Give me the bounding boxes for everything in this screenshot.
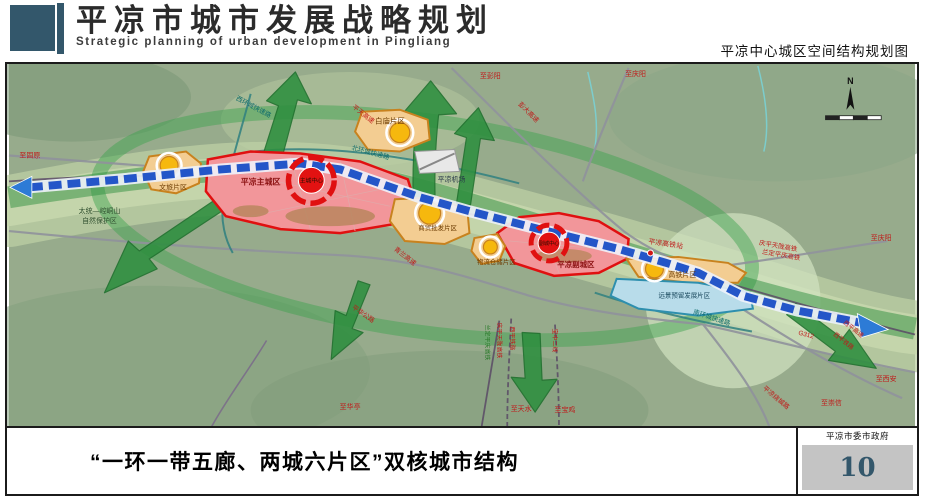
scale-bar: [826, 116, 882, 120]
label-main-city: 平凉主城区: [241, 176, 281, 186]
map-canvas: 至固原 西环城快速路 平天高速 北环城快速路 白庙片区 至彭阳 彭大高速 至庆阳…: [7, 64, 917, 428]
page-title: 平凉市城市发展战略规划: [76, 4, 494, 38]
page-subtitle-english: Strategic planning of urban development …: [76, 36, 494, 48]
label-to-xian: 至西安: [876, 374, 897, 383]
hsr-station-marker: [647, 250, 653, 256]
label-to-huating: 至华亭: [340, 402, 361, 411]
label-nature-reserve-2: 自然保护区: [82, 216, 117, 225]
label-to-qingyang-east: 至庆阳: [871, 233, 892, 242]
airport-area: [415, 150, 460, 174]
page-number: 10: [802, 445, 913, 490]
label-xiping-railway-vert: 西平铁路: [508, 327, 516, 351]
page-footer: “一环一带五廊、两城六片区”双核城市结构 平凉市委市政府 10: [7, 428, 917, 494]
label-to-guyuan: 至固原: [19, 151, 40, 159]
label-to-baoji: 至宝鸡: [554, 405, 575, 414]
planning-map: 至固原 西环城快速路 平天高速 北环城快速路 白庙片区 至彭阳 彭大高速 至庆阳…: [7, 64, 917, 428]
label-zone-wenlv: 文旅片区: [159, 182, 187, 191]
label-nature-reserve-1: 太统—崆峒山: [79, 206, 121, 215]
label-to-tianshui: 至天水: [511, 404, 532, 413]
label-baozhong-line2: 宝中二线: [551, 329, 559, 353]
label-qingping-hsr-vert: 庆平天陇高铁: [495, 323, 503, 359]
label-zone-shangmao: 商贸批发片区: [418, 223, 457, 232]
agency-label: 平凉市委市政府: [798, 428, 917, 443]
label-landing-hsr-vert: 兰定平庆高铁: [483, 325, 491, 361]
label-to-qingyang-top: 至庆阳: [625, 69, 646, 78]
label-zone-wuliu: 物流仓储片区: [477, 257, 516, 266]
label-zone-gaotie: 高铁片区: [668, 270, 696, 279]
label-sub-center: 副城中心: [539, 239, 560, 247]
map-caption: “一环一带五廊、两城六片区”双核城市结构: [90, 446, 519, 476]
page-number-box: 平凉市委市政府 10: [796, 428, 917, 494]
label-to-chongxin: 至崇信: [821, 398, 842, 407]
label-sub-city: 平凉副城区: [557, 259, 595, 269]
svg-text:N: N: [847, 76, 853, 86]
label-airport: 平凉机场: [438, 174, 466, 183]
label-to-pengyang: 至彭阳: [480, 71, 501, 80]
label-zone-baimiao: 白庙片区: [375, 116, 405, 126]
header-accent-square: [10, 5, 55, 51]
label-main-center: 主城中心: [300, 176, 323, 184]
content-frame: 至固原 西环城快速路 平天高速 北环城快速路 白庙片区 至彭阳 彭大高速 至庆阳…: [5, 62, 919, 496]
header-accent-bar: [57, 3, 64, 54]
map-title: 平凉中心城区空间结构规划图: [721, 40, 910, 60]
page-header: 平凉市城市发展战略规划 Strategic planning of urban …: [0, 0, 925, 62]
label-zone-yuanjing: 远景预留发展片区: [658, 291, 710, 300]
